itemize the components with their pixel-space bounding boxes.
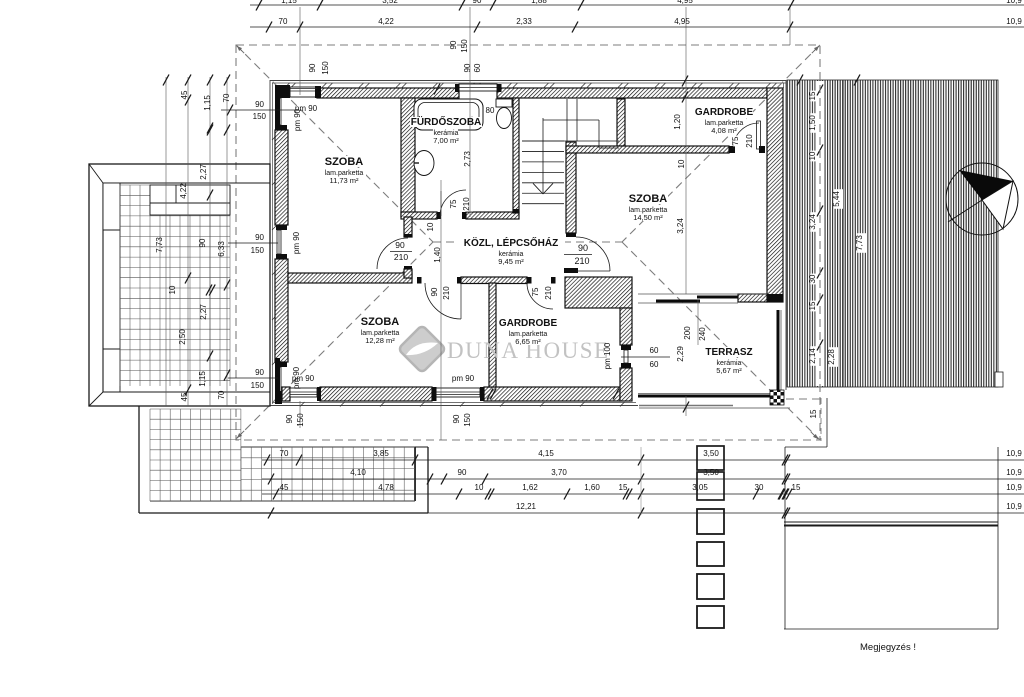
svg-text:15: 15 <box>809 409 818 418</box>
svg-text:14,50 m²: 14,50 m² <box>633 213 663 222</box>
svg-text:30: 30 <box>808 274 817 283</box>
svg-text:10,9: 10,9 <box>1006 449 1022 458</box>
svg-text:70: 70 <box>217 390 226 399</box>
svg-text:SZOBA: SZOBA <box>325 156 364 168</box>
svg-text:10,9: 10,9 <box>1006 468 1022 477</box>
svg-text:5,67 m²: 5,67 m² <box>716 366 742 375</box>
svg-text:12,28 m²: 12,28 m² <box>365 336 395 345</box>
svg-text:4,08 m²: 4,08 m² <box>711 126 737 135</box>
svg-text:4,15: 4,15 <box>538 449 554 458</box>
svg-text:pm 90: pm 90 <box>293 108 302 131</box>
svg-text:12,21: 12,21 <box>516 502 537 511</box>
svg-text:60: 60 <box>650 360 659 369</box>
svg-text:2,27: 2,27 <box>199 164 208 180</box>
svg-text:10,9: 10,9 <box>1006 17 1022 26</box>
svg-text:60: 60 <box>473 63 482 72</box>
svg-text:2,50: 2,50 <box>178 329 187 345</box>
svg-text:150: 150 <box>251 246 265 255</box>
svg-text:210: 210 <box>462 197 471 211</box>
svg-text:15: 15 <box>808 91 817 100</box>
svg-text:4,22: 4,22 <box>179 183 188 199</box>
svg-text:4,10: 4,10 <box>350 468 366 477</box>
svg-text:6,33: 6,33 <box>217 241 226 257</box>
svg-text:240: 240 <box>698 327 707 341</box>
svg-text:1,40: 1,40 <box>433 247 442 263</box>
svg-text:9,45 m²: 9,45 m² <box>498 257 524 266</box>
svg-text:3,70: 3,70 <box>551 468 567 477</box>
svg-text:4,95: 4,95 <box>677 0 693 5</box>
svg-text:10,9: 10,9 <box>1006 0 1022 5</box>
svg-text:70: 70 <box>222 93 231 102</box>
svg-text:90: 90 <box>255 233 264 242</box>
svg-text:7,73: 7,73 <box>155 237 164 253</box>
svg-text:210: 210 <box>442 286 451 300</box>
svg-text:5,44: 5,44 <box>832 191 841 207</box>
svg-text:90: 90 <box>473 0 482 5</box>
svg-text:60: 60 <box>650 346 659 355</box>
svg-text:45: 45 <box>280 483 289 492</box>
svg-text:1,20: 1,20 <box>673 114 682 130</box>
svg-text:75: 75 <box>731 136 740 145</box>
svg-text:10: 10 <box>475 483 484 492</box>
svg-text:1,60: 1,60 <box>584 483 600 492</box>
svg-text:2,28: 2,28 <box>827 349 836 365</box>
svg-text:TERRASZ: TERRASZ <box>705 347 752 358</box>
svg-text:210: 210 <box>574 256 589 266</box>
svg-text:10,9: 10,9 <box>1006 502 1022 511</box>
svg-text:15: 15 <box>619 483 628 492</box>
svg-text:80: 80 <box>486 106 495 115</box>
svg-text:70: 70 <box>279 17 288 26</box>
svg-text:150: 150 <box>251 381 265 390</box>
svg-text:210: 210 <box>544 286 553 300</box>
svg-text:150: 150 <box>321 61 330 75</box>
svg-text:10: 10 <box>168 285 177 294</box>
svg-text:3,50: 3,50 <box>703 449 719 458</box>
svg-text:2,33: 2,33 <box>516 17 532 26</box>
svg-text:3,24: 3,24 <box>808 214 817 230</box>
svg-text:90: 90 <box>285 414 294 423</box>
svg-text:6,65 m²: 6,65 m² <box>515 337 541 346</box>
svg-text:pm 90: pm 90 <box>452 374 475 383</box>
svg-text:90: 90 <box>463 63 472 72</box>
svg-text:4,95: 4,95 <box>674 17 690 26</box>
svg-text:150: 150 <box>253 112 267 121</box>
svg-text:70: 70 <box>280 449 289 458</box>
svg-text:SZOBA: SZOBA <box>629 193 668 205</box>
svg-text:1,15: 1,15 <box>198 371 207 387</box>
svg-text:2,29: 2,29 <box>676 346 685 362</box>
svg-text:4,78: 4,78 <box>378 483 394 492</box>
svg-text:10,9: 10,9 <box>1006 483 1022 492</box>
svg-text:11,73 m²: 11,73 m² <box>329 176 359 185</box>
svg-text:2,73: 2,73 <box>463 151 472 167</box>
svg-text:75: 75 <box>531 287 540 296</box>
svg-text:10: 10 <box>426 222 435 231</box>
svg-text:15: 15 <box>808 301 817 310</box>
svg-text:90: 90 <box>430 287 439 296</box>
svg-text:pm 90: pm 90 <box>292 374 315 383</box>
svg-text:1,15: 1,15 <box>203 95 212 111</box>
svg-text:GARDROBE: GARDROBE <box>499 318 558 329</box>
svg-text:75: 75 <box>449 199 458 208</box>
svg-text:7,73: 7,73 <box>855 235 864 251</box>
svg-text:90: 90 <box>255 100 264 109</box>
svg-text:1,50: 1,50 <box>808 115 817 131</box>
svg-text:KÖZL, LÉPCSŐHÁZ: KÖZL, LÉPCSŐHÁZ <box>464 236 558 249</box>
svg-text:210: 210 <box>745 134 754 148</box>
svg-text:2,14: 2,14 <box>808 348 817 364</box>
svg-text:90: 90 <box>578 243 588 253</box>
svg-text:90: 90 <box>449 40 458 49</box>
svg-text:45: 45 <box>180 392 189 401</box>
svg-text:150: 150 <box>296 413 305 427</box>
svg-text:3,52: 3,52 <box>382 0 398 5</box>
svg-text:3,85: 3,85 <box>373 449 389 458</box>
svg-text:2,27: 2,27 <box>199 304 208 320</box>
svg-text:3,05: 3,05 <box>692 483 708 492</box>
svg-text:150: 150 <box>460 39 469 53</box>
svg-text:90: 90 <box>458 468 467 477</box>
svg-text:30: 30 <box>755 483 764 492</box>
svg-text:10: 10 <box>677 159 686 168</box>
svg-text:3,24: 3,24 <box>676 218 685 234</box>
svg-text:90: 90 <box>308 63 317 72</box>
svg-text:1,88: 1,88 <box>531 0 547 5</box>
svg-text:pm 100: pm 100 <box>603 342 612 369</box>
svg-text:90: 90 <box>452 414 461 423</box>
svg-text:45: 45 <box>180 90 189 99</box>
svg-text:90: 90 <box>395 240 405 250</box>
svg-text:Megjegyzés !: Megjegyzés ! <box>860 642 916 653</box>
svg-text:1,15: 1,15 <box>281 0 297 5</box>
svg-text:150: 150 <box>463 413 472 427</box>
svg-text:210: 210 <box>394 252 408 262</box>
svg-text:15: 15 <box>792 483 801 492</box>
svg-text:GARDROBE: GARDROBE <box>695 107 754 118</box>
svg-text:200: 200 <box>683 326 692 340</box>
svg-text:90: 90 <box>198 238 207 247</box>
svg-text:7,00 m²: 7,00 m² <box>433 136 459 145</box>
svg-text:SZOBA: SZOBA <box>361 316 400 328</box>
svg-text:FÜRDŐSZOBA: FÜRDŐSZOBA <box>411 115 482 128</box>
svg-text:1,62: 1,62 <box>522 483 538 492</box>
svg-text:90: 90 <box>255 368 264 377</box>
svg-text:4,22: 4,22 <box>378 17 394 26</box>
svg-text:10: 10 <box>808 151 817 160</box>
svg-text:pm 90: pm 90 <box>292 231 301 254</box>
